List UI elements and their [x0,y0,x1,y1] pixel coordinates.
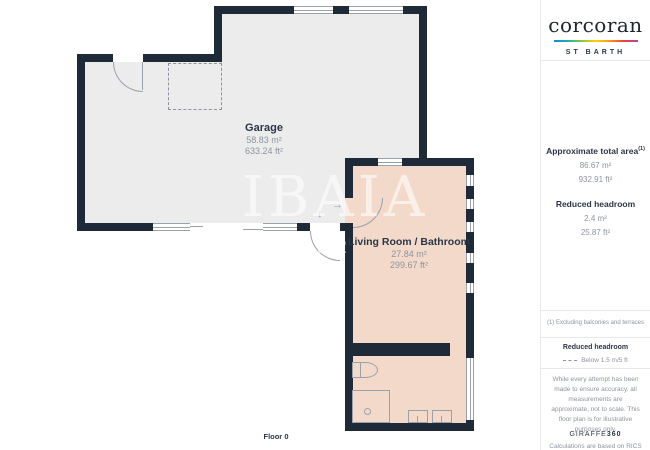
credit-number: 360 [607,431,622,438]
reduced-headroom-area [168,63,222,110]
credit-brand: GIRAFFE [569,431,606,438]
window [466,175,474,186]
sink-fixture [417,416,418,423]
sink-fixture [408,410,428,423]
sink-fixture [432,410,452,423]
spectrum-bar [554,40,638,42]
info-panel: corcoran ST BARTH Approximate total area… [540,0,650,450]
toilet-fixture [360,362,361,378]
garage-label: Garage 58.83 m² 633.24 ft² [204,121,324,157]
panel-divider [541,60,650,61]
footnote-marker: (1) [638,146,645,152]
wall-segment [466,209,474,222]
garage-floor [345,62,419,158]
disclaimer-text: Calculations are based on RICS IPMS 3C s… [549,442,642,450]
window [466,283,474,293]
area-summary: Approximate total area(1) 86.67 m² 932.9… [541,146,650,237]
window [294,6,333,14]
garage-floor [214,14,419,62]
legend-value: Below 1.5 m/5 ft [581,357,628,364]
giraffe360-credit: GIRAFFE360 [541,431,650,438]
office-name: ST BARTH [541,49,650,56]
room-area-ft2: 299.67 ft² [333,260,485,271]
window [349,6,403,14]
window [466,358,474,420]
wall-segment [143,54,222,62]
window [466,222,474,232]
bathroom-partition-wall [353,343,450,356]
door-leaf [142,62,143,90]
wall-segment [466,186,474,199]
panel-divider [541,310,650,311]
window [466,199,474,209]
total-area-m2: 86.67 m² [541,161,650,170]
reduced-headroom-legend: Reduced headroom Below 1.5 m/5 ft [541,344,650,364]
floorplan-page: → ↓ IBAIA ER Garage 58.83 m² 633.24 ft² … [0,0,650,450]
room-area-m2: 27.84 m² [333,249,485,260]
brand-block: corcoran ST BARTH [541,13,650,56]
wall-segment [214,6,294,14]
wall-segment [466,293,474,358]
disclaimer-block: While every attempt has been made to ens… [549,375,642,450]
reduced-headroom-m2: 2.4 m² [541,214,650,223]
reduced-headroom-ft2: 25.87 ft² [541,228,650,237]
wall-segment [77,54,85,231]
room-name: Garage [204,121,324,135]
legend-label: Reduced headroom [541,344,650,351]
shower-fixture [352,390,390,423]
living-room-label: Living Room / Bathroom 27.84 m² 299.67 f… [333,236,485,271]
corcoran-logo: corcoran [541,13,650,37]
total-area-label: Approximate total area [546,146,638,156]
wall-segment [345,423,474,431]
total-area-heading: Approximate total area(1) [541,146,650,156]
dashed-line-icon [563,360,577,361]
wall-segment [419,6,427,162]
toilet-fixture [352,362,378,378]
panel-divider [541,368,650,369]
sink-fixture [441,416,442,423]
room-name: Living Room / Bathroom [333,236,485,249]
room-area-m2: 58.83 m² [204,135,324,146]
total-area-ft2: 932.91 ft² [541,175,650,184]
window [153,223,190,231]
reduced-headroom-heading: Reduced headroom [541,199,650,209]
wall-segment [466,158,474,175]
floor-label: Floor 0 [240,432,312,441]
legend-row: Below 1.5 m/5 ft [541,357,650,364]
room-area-ft2: 633.24 ft² [204,146,324,157]
shower-drain [364,408,371,415]
wall-segment [77,223,153,231]
watermark-text: IBAIA [242,170,428,226]
wall-segment [333,6,349,14]
opening-edge [190,226,203,227]
disclaimer-text: While every attempt has been made to ens… [549,375,642,435]
panel-divider [541,337,650,338]
floorplan-canvas: → ↓ IBAIA ER Garage 58.83 m² 633.24 ft² … [0,0,540,450]
footnote-text: (1) Excluding balconies and terraces [541,320,650,326]
